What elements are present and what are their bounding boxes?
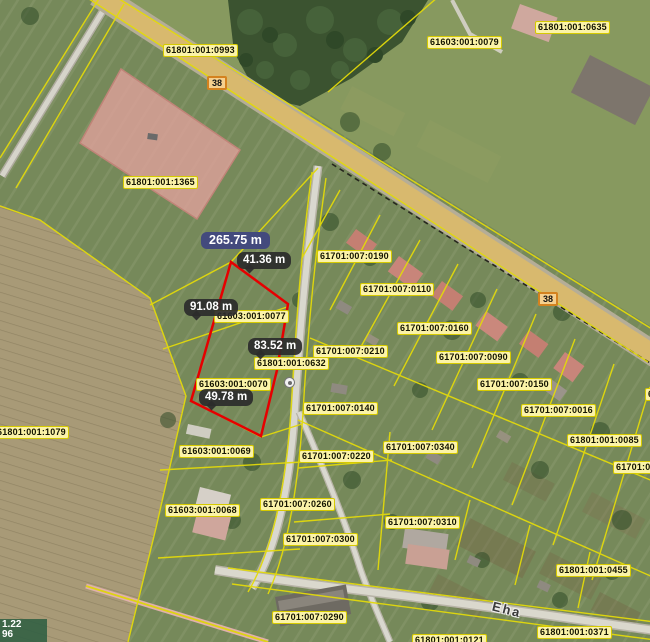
parcel-label: 61701:007:0310 bbox=[385, 516, 460, 529]
parcel-label: 61701:007:0260 bbox=[260, 498, 335, 511]
parcel-label: 61801:001:1079 bbox=[0, 426, 69, 439]
measurement-segment-badge: 91.08 m bbox=[184, 299, 238, 316]
road-number-badge: 38 bbox=[538, 292, 558, 306]
map-viewport[interactable]: 61801:001:099361603:001:007961801:001:06… bbox=[0, 0, 650, 642]
parcel-label: 61801:001:0632 bbox=[254, 357, 329, 370]
parcel-label: 61701:007:0220 bbox=[299, 450, 374, 463]
measurement-segment-badge: 41.36 m bbox=[237, 252, 291, 269]
parcel-label: 61801:001:0455 bbox=[556, 564, 631, 577]
measurement-segment-badge: 83.52 m bbox=[248, 338, 302, 355]
parcel-label: 61701:007:0090 bbox=[436, 351, 511, 364]
parcel-label: 61603:001:0079 bbox=[427, 36, 502, 49]
parcel-label: 61801:001:0121 bbox=[412, 634, 487, 642]
parcel-label: 61801:001:0371 bbox=[537, 626, 612, 639]
parcel-label: 61701:007:0340 bbox=[383, 441, 458, 454]
parcel-label: 61801:001:0993 bbox=[163, 44, 238, 57]
coordinates-readout: 1.22 96 bbox=[0, 619, 47, 642]
parcel-label: 61701:007:0190 bbox=[317, 250, 392, 263]
parcel-label: 61603:001:0068 bbox=[165, 504, 240, 517]
measure-vertex-handle[interactable] bbox=[284, 377, 295, 388]
parcel-label: 61701:007:0150 bbox=[477, 378, 552, 391]
parcel-label: 61701:007:0016 bbox=[521, 404, 596, 417]
parcel-label: 6 bbox=[645, 388, 650, 401]
parcel-label: 61701:007:0160 bbox=[397, 322, 472, 335]
road-number-badge: 38 bbox=[207, 76, 227, 90]
parcel-label: 61801:001:0635 bbox=[535, 21, 610, 34]
parcel-label: 61801:001:0085 bbox=[567, 434, 642, 447]
parcel-label: 61701:007:0300 bbox=[283, 533, 358, 546]
coordinate-line-2: 96 bbox=[2, 630, 45, 640]
parcel-label: 61701:0 bbox=[613, 461, 650, 474]
parcel-label: 61701:007:0140 bbox=[303, 402, 378, 415]
parcel-label: 61701:007:0110 bbox=[360, 283, 434, 296]
parcel-label: 61701:007:0290 bbox=[272, 611, 347, 624]
parcel-label: 61603:001:0069 bbox=[179, 445, 254, 458]
measurement-total-badge: 265.75 m bbox=[201, 232, 270, 249]
measurement-segment-badge: 49.78 m bbox=[199, 389, 253, 406]
parcel-label: 61801:001:1365 bbox=[123, 176, 198, 189]
